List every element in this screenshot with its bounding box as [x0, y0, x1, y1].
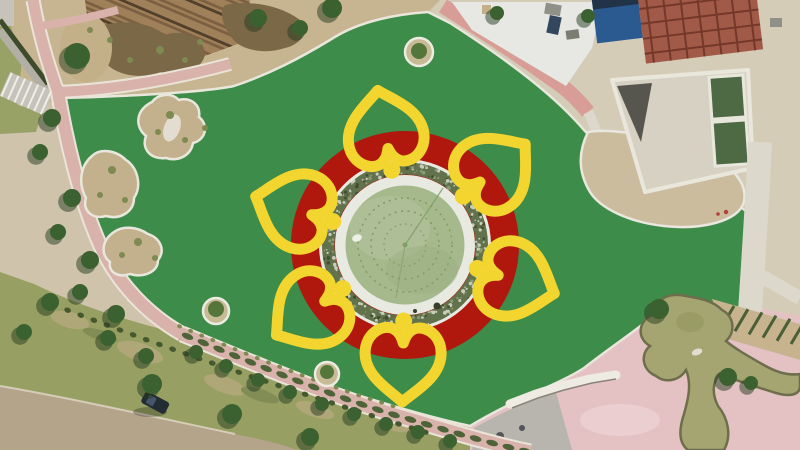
- gray-block: [566, 29, 580, 40]
- equipment-speck: [724, 210, 728, 214]
- pond-shading: [676, 312, 704, 332]
- concrete-path-right: [750, 142, 760, 312]
- water-tank: [712, 120, 749, 166]
- water-tank: [709, 75, 746, 119]
- equipment-speck: [716, 212, 720, 216]
- scrub-island: [104, 228, 162, 276]
- water-shade: [386, 246, 458, 294]
- fountain-center: [403, 243, 408, 248]
- paving-dot: [519, 425, 525, 431]
- gray-block: [770, 18, 782, 27]
- visitor-speck: [413, 309, 417, 313]
- park-scene: [0, 0, 800, 450]
- visitor-speck: [434, 303, 441, 310]
- water-tanks: [709, 75, 749, 166]
- aerial-park-photo: [0, 0, 800, 450]
- plaza-highlight: [580, 404, 660, 436]
